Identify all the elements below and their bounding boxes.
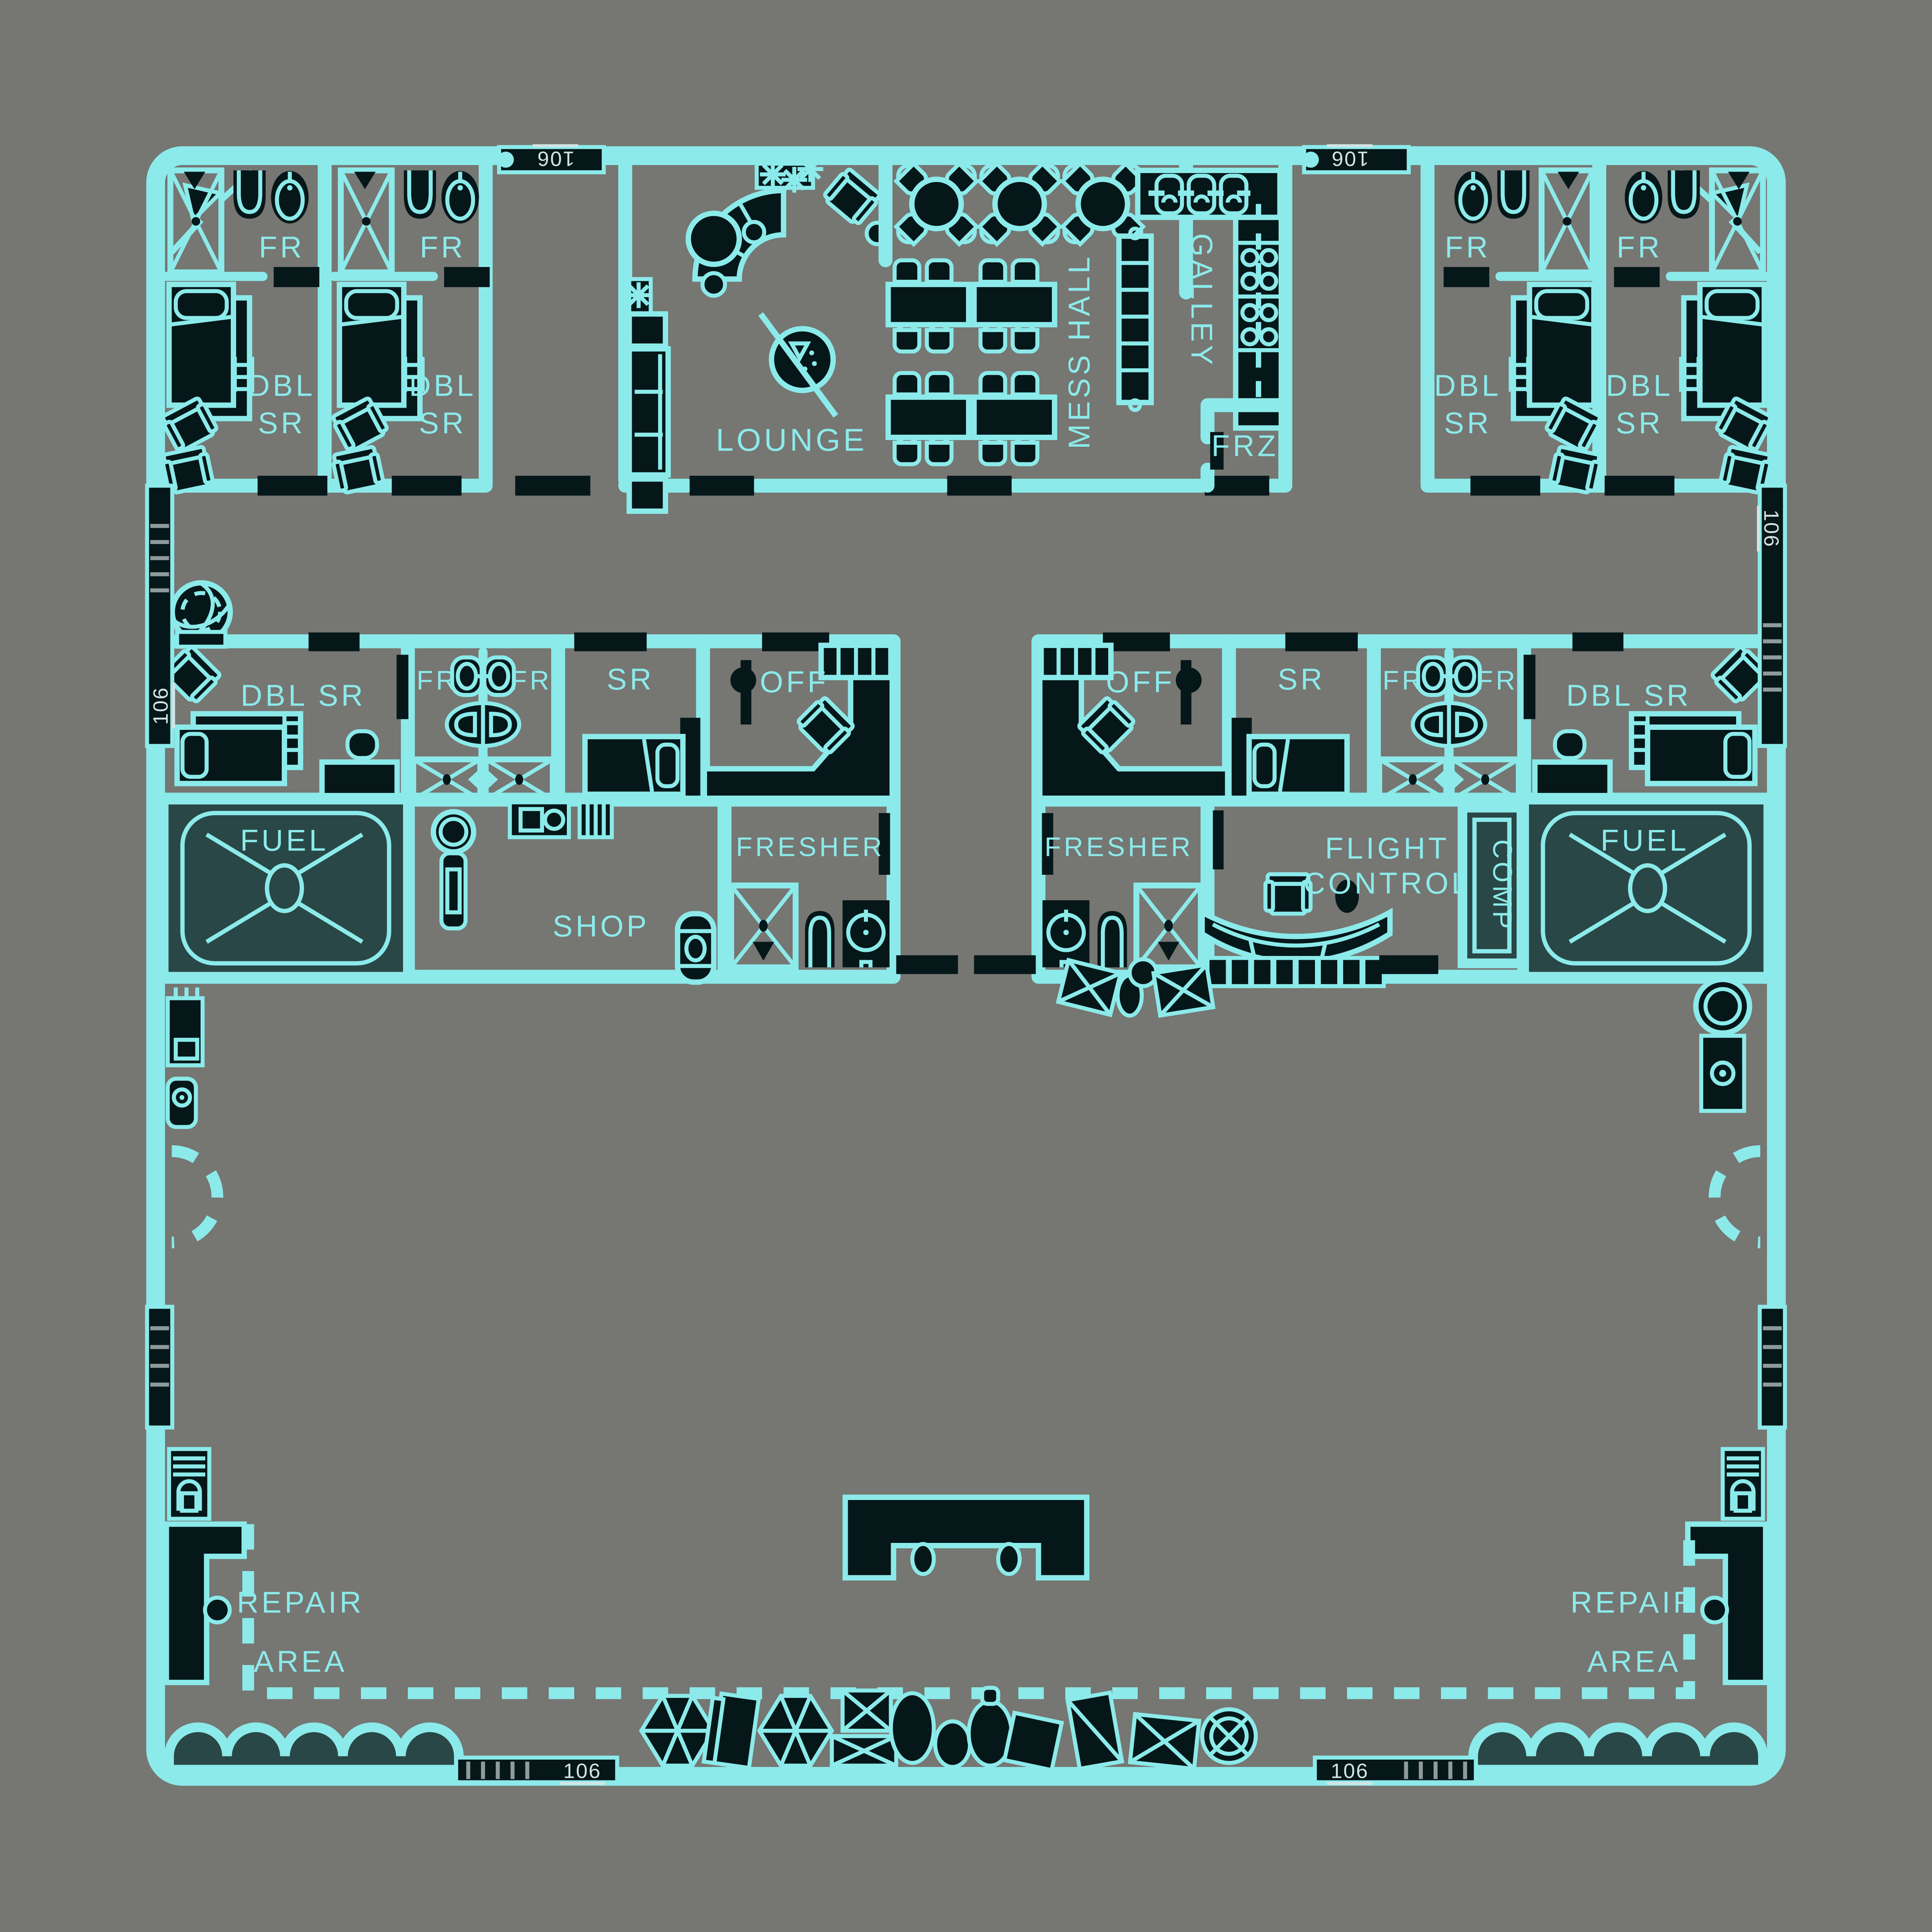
hatch-106-left-wall: 106 (147, 486, 174, 746)
docking-ring-icon (172, 1151, 217, 1242)
console-icon (1202, 912, 1390, 962)
label-mess-hall: MESS HALL (1063, 254, 1096, 449)
label-off: OFF (1106, 666, 1175, 699)
label-lounge: LOUNGE (716, 423, 867, 458)
hatch-number: 106 (1331, 147, 1369, 170)
label-off: OFF (760, 666, 828, 699)
label-sr: SR (258, 407, 306, 440)
cargo-bay (168, 980, 1760, 1578)
label-fresher: FRESHER (736, 832, 885, 862)
hatch-106-bottom-right: 106 (1315, 1758, 1476, 1784)
label-dbl: DBL (1434, 369, 1502, 402)
repair-area-right (1688, 1449, 1765, 1682)
plant-icon (798, 156, 823, 182)
label-control: CONTROL (1303, 867, 1471, 900)
hatch-106-top-right: 106 (1303, 146, 1409, 172)
label-galley: GALLEY (1185, 233, 1218, 368)
door (1213, 810, 1224, 869)
work-table-icon (845, 1497, 1087, 1578)
cargo-row (641, 1688, 1256, 1770)
label-fr: FR (420, 231, 466, 264)
label-sr: SR (1616, 407, 1663, 440)
label-fr: FR (510, 665, 552, 696)
label-dbl-sr: DBL SR (1566, 679, 1691, 712)
label-sr: SR (1277, 663, 1325, 696)
armchair-icon (822, 167, 882, 226)
label-shop: SHOP (553, 910, 650, 943)
label-fr: FR (417, 665, 458, 696)
hatch-106-top-left: 106 (498, 146, 604, 172)
wall-device-icon (168, 1079, 196, 1127)
dining-table-icon (976, 160, 1064, 248)
label-fr: FR (1383, 665, 1424, 696)
console-panels (1207, 958, 1384, 986)
label-dbl: DBL (409, 369, 476, 402)
label-fr: FR (1445, 231, 1491, 264)
hatch-number: 106 (1331, 1759, 1369, 1782)
hatch-number: 106 (149, 687, 172, 725)
room-dbl-sr-4 (1614, 170, 1773, 494)
label-fuel: FUEL (1600, 824, 1689, 857)
label-sr: SR (1444, 407, 1492, 440)
label-sr: SR (419, 407, 466, 440)
cargo-crates (1058, 959, 1213, 1016)
sofa-icon (629, 349, 668, 475)
hatch-number: 106 (536, 147, 575, 170)
room-mess-hall (886, 160, 1151, 464)
ball-turret-icon (172, 583, 230, 646)
deck-plan-page: 106 106 106 106 (0, 0, 1932, 1932)
label-frz: FRZ (1211, 430, 1279, 463)
extinguisher-station-icon (1696, 980, 1750, 1111)
long-tables (888, 260, 1055, 464)
top-staterooms (160, 164, 1773, 496)
deck-plan-drawing: 106 106 106 106 (0, 0, 1932, 1932)
label-fr: FR (1617, 231, 1663, 264)
dining-table-icon (893, 160, 981, 248)
repair-area-left (167, 1449, 244, 1682)
hatch-106-right-wall: 106 (1759, 486, 1785, 746)
room-shop (434, 802, 714, 982)
label-dbl: DBL (248, 369, 315, 402)
hatch-number: 106 (1760, 510, 1783, 548)
plant-icon (760, 162, 786, 187)
label-area: AREA (254, 1645, 347, 1678)
hatch-number: 106 (563, 1759, 602, 1782)
label-comp: COMP (1488, 839, 1518, 932)
label-flight: FLIGHT (1325, 832, 1449, 865)
round-table-icon (688, 213, 739, 264)
hatch-106-bottom-left: 106 (456, 1758, 617, 1784)
plant-icon (626, 282, 651, 308)
label-fr: FR (259, 231, 305, 264)
room-dbl-sr-1 (160, 170, 320, 494)
label-dbl: DBL (1606, 369, 1673, 402)
docking-ring-icon (1715, 1151, 1760, 1242)
label-area: AREA (1587, 1645, 1681, 1678)
repair-area-boundary (248, 1524, 1689, 1693)
label-sr: SR (607, 663, 654, 696)
label-dbl-sr: DBL SR (241, 679, 366, 712)
label-fr: FR (1476, 665, 1518, 696)
label-repair: REPAIR (1570, 1586, 1698, 1619)
label-fresher: FRESHER (1044, 832, 1193, 862)
label-repair: REPAIR (237, 1586, 364, 1619)
lathe-drum-icon (677, 914, 714, 982)
room-dbl-sr-3 (1444, 170, 1603, 494)
label-fuel: FUEL (240, 824, 328, 857)
room-dbl-sr-2 (331, 170, 490, 494)
